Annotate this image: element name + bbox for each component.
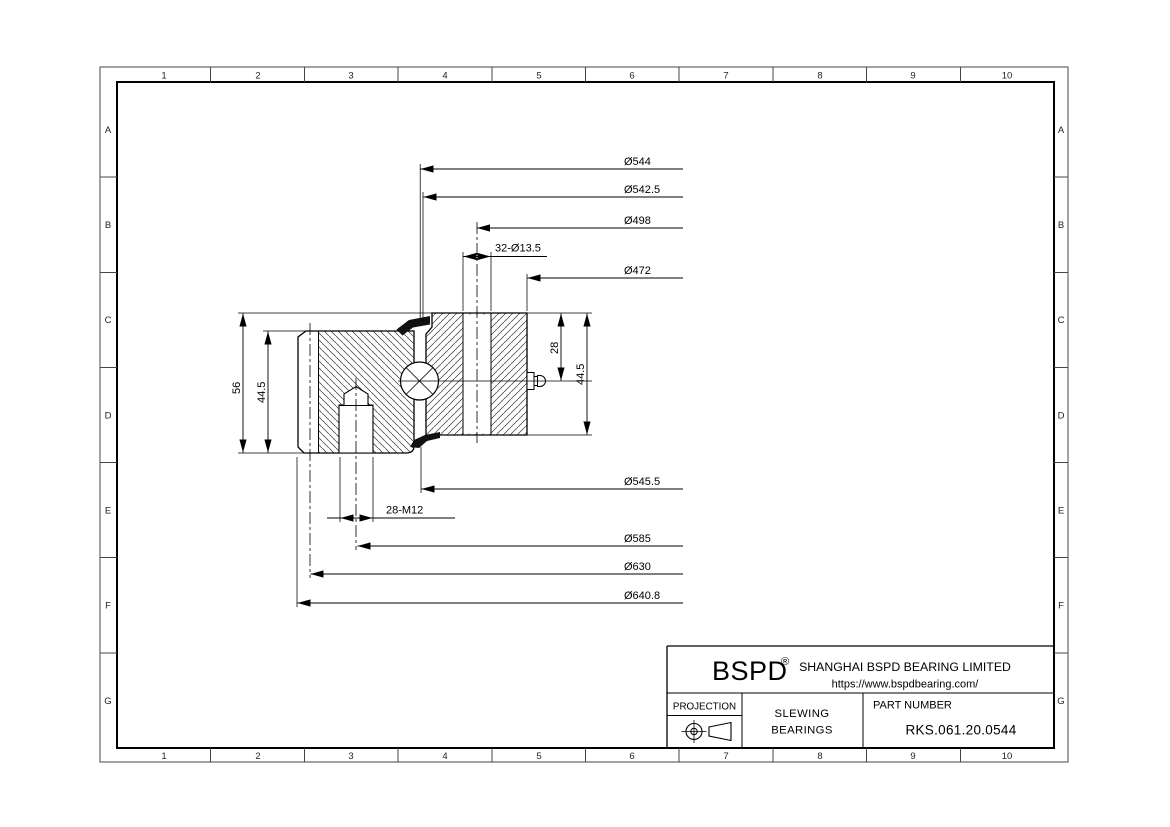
grid-col-label: 3 bbox=[348, 751, 353, 762]
title-block: BSPD ® SHANGHAI BSPD BEARING LIMITED htt… bbox=[667, 646, 1054, 748]
dim-label-od498: Ø498 bbox=[624, 215, 651, 227]
grid-col-label: 1 bbox=[161, 71, 166, 82]
grid-row-label: G bbox=[104, 696, 111, 707]
grid-row-label: E bbox=[1058, 506, 1064, 517]
grid-col-label: 9 bbox=[910, 751, 915, 762]
dim-label-od545-5: Ø545.5 bbox=[624, 476, 660, 488]
grid-row-label: C bbox=[1058, 315, 1065, 326]
grid-col-label: 3 bbox=[348, 71, 353, 82]
company-website: https://www.bspdbearing.com/ bbox=[832, 679, 980, 691]
grid-col-label: 8 bbox=[817, 751, 822, 762]
grid-ticks bbox=[100, 67, 1068, 762]
grid-row-label: B bbox=[1058, 220, 1064, 231]
drawing-canvas: 1 2 3 4 5 6 7 8 9 10 1 2 3 4 5 6 7 8 9 1… bbox=[0, 0, 1170, 827]
grid-row-label: D bbox=[1058, 411, 1065, 422]
grid-col-label: 6 bbox=[629, 71, 634, 82]
dim-label-od472: Ø472 bbox=[624, 265, 651, 277]
product-name-line1: SLEWING bbox=[775, 708, 830, 720]
grid-col-label: 5 bbox=[536, 751, 541, 762]
grid-row-label: A bbox=[1058, 125, 1065, 136]
dim-label-tapped-holes: 28-M12 bbox=[386, 505, 423, 517]
mounting-hole bbox=[463, 222, 491, 443]
grid-col-label: 4 bbox=[442, 751, 447, 762]
drawing-sheet: 1 2 3 4 5 6 7 8 9 10 1 2 3 4 5 6 7 8 9 1… bbox=[0, 0, 1170, 827]
grid-row-label: F bbox=[105, 601, 111, 612]
grid-row-label: D bbox=[105, 411, 112, 422]
grid-col-label: 7 bbox=[723, 751, 728, 762]
part-number-label: PART NUMBER bbox=[873, 700, 952, 712]
inner-ring-section bbox=[298, 323, 427, 578]
company-name: SHANGHAI BSPD BEARING LIMITED bbox=[799, 660, 1011, 674]
grid-col-label: 10 bbox=[1002, 751, 1013, 762]
dim-label-od542-5: Ø542.5 bbox=[624, 184, 660, 196]
grid-col-label: 10 bbox=[1002, 71, 1013, 82]
grid-col-label: 8 bbox=[817, 71, 822, 82]
grid-row-label: A bbox=[105, 125, 112, 136]
dim-label-od640-8: Ø640.8 bbox=[624, 590, 660, 602]
grid-row-label: C bbox=[105, 315, 112, 326]
projection-label: PROJECTION bbox=[673, 702, 736, 713]
grid-row-label: E bbox=[105, 506, 111, 517]
grid-col-label: 6 bbox=[629, 751, 634, 762]
grid-col-label: 2 bbox=[255, 71, 260, 82]
tapped-hole bbox=[339, 378, 373, 550]
grid-col-label: 5 bbox=[536, 71, 541, 82]
part-number-value: RKS.061.20.0544 bbox=[905, 723, 1016, 738]
outer-ring-section bbox=[413, 222, 545, 443]
brand-logo: BSPD bbox=[712, 656, 788, 686]
dim-label-height44-5-right: 44.5 bbox=[575, 364, 587, 385]
dim-label-od630: Ø630 bbox=[624, 561, 651, 573]
dim-label-od544: Ø544 bbox=[624, 156, 651, 168]
grid-labels: 1 2 3 4 5 6 7 8 9 10 1 2 3 4 5 6 7 8 9 1… bbox=[104, 71, 1065, 763]
dim-label-height28: 28 bbox=[549, 342, 561, 354]
grid-row-label: B bbox=[105, 220, 111, 231]
dim-label-bolt-holes: 32-Ø13.5 bbox=[495, 243, 541, 255]
projection-symbol-icon bbox=[682, 720, 732, 743]
dim-label-height56: 56 bbox=[231, 382, 243, 394]
dim-label-od585: Ø585 bbox=[624, 533, 651, 545]
grid-col-label: 7 bbox=[723, 71, 728, 82]
dim-label-height44-5-left: 44.5 bbox=[256, 382, 268, 403]
grid-col-label: 4 bbox=[442, 71, 447, 82]
product-name-line2: BEARINGS bbox=[771, 725, 833, 737]
sheet-frame bbox=[100, 67, 1068, 762]
section-view bbox=[298, 222, 546, 578]
grid-row-label: G bbox=[1057, 696, 1064, 707]
grid-col-label: 9 bbox=[910, 71, 915, 82]
grid-row-label: F bbox=[1058, 601, 1064, 612]
grid-col-label: 2 bbox=[255, 751, 260, 762]
registered-mark: ® bbox=[781, 656, 789, 668]
grid-col-label: 1 bbox=[161, 751, 166, 762]
